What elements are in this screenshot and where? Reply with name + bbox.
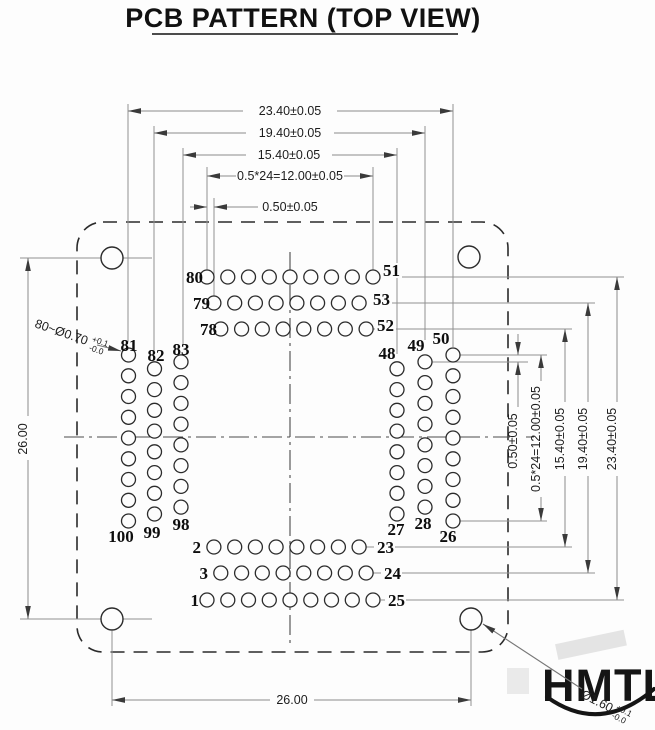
pin-label-51: 51	[383, 261, 400, 280]
pad-hole-top-inner-5	[297, 322, 311, 336]
pad-hole-left-outer-7	[122, 473, 136, 487]
pin-label-25: 25	[388, 591, 405, 610]
pad-hole-top-outer-3	[242, 270, 256, 284]
pad-hole-top-outer-5	[283, 270, 297, 284]
pin-label-99: 99	[144, 523, 161, 542]
pad-hole-left-inner-8	[174, 500, 188, 514]
pad-hole-bottom-inner-6	[311, 540, 325, 554]
pad-hole-left-inner-6	[174, 459, 188, 473]
pad-hole-left-inner-2	[174, 376, 188, 390]
dim-right-pitch: 0.5*24=12.00±0.05	[529, 386, 543, 492]
pad-hole-top-outer-4	[262, 270, 276, 284]
pin-label-50: 50	[433, 329, 450, 348]
mounting-hole-1	[101, 247, 123, 269]
dim-top-pitch: 0.5*24=12.00±0.05	[237, 169, 343, 183]
pad-hole-top-inner-8	[359, 322, 373, 336]
pad-hole-top-inner-3	[255, 322, 269, 336]
pad-hole-right-middle-4	[418, 417, 432, 431]
pcb-pattern-drawing: PCB PATTERN (TOP VIEW)	[0, 0, 655, 730]
pad-hole-left-outer-3	[122, 390, 136, 404]
pad-hole-bottom-middle-1	[214, 566, 228, 580]
pad-hole-right-inner-1	[390, 362, 404, 376]
drawing-title: PCB PATTERN (TOP VIEW)	[125, 3, 481, 34]
pad-hole-top-middle-2	[228, 296, 242, 310]
pin-label-2: 2	[193, 538, 202, 557]
pad-hole-right-outer-8	[446, 493, 460, 507]
pad-hole-left-outer-2	[122, 369, 136, 383]
pad-hole-right-inner-4	[390, 424, 404, 438]
pad-hole-right-outer-4	[446, 410, 460, 424]
pin-label-53: 53	[373, 290, 390, 309]
dim-bottom-26-00: 26.00	[276, 693, 307, 707]
pad-hole-left-middle-2	[148, 383, 162, 397]
pad-hole-left-outer-9	[122, 514, 136, 528]
pad-hole-bottom-middle-7	[338, 566, 352, 580]
pad-hole-bottom-outer-3	[242, 593, 256, 607]
page-title: PCB PATTERN (TOP VIEW)	[125, 3, 481, 33]
centerlines	[64, 252, 540, 644]
pad-hole-right-middle-6	[418, 459, 432, 473]
pad-hole-right-inner-3	[390, 403, 404, 417]
pad-hole-bottom-outer-1	[200, 593, 214, 607]
pad-hole-top-inner-6	[318, 322, 332, 336]
pad-hole-right-outer-1	[446, 348, 460, 362]
pin-label-3: 3	[200, 564, 209, 583]
pin-label-80: 80	[186, 268, 203, 287]
pad-hole-right-outer-5	[446, 431, 460, 445]
pin-label-26: 26	[440, 527, 457, 546]
pad-hole-top-middle-4	[269, 296, 283, 310]
pad-hole-bottom-outer-9	[366, 593, 380, 607]
dim-top-15-40: 15.40±0.05	[258, 148, 321, 162]
pad-hole-right-inner-6	[390, 466, 404, 480]
pad-hole-right-inner-7	[390, 486, 404, 500]
pad-hole-bottom-middle-4	[276, 566, 290, 580]
pad-hole-bottom-middle-8	[359, 566, 373, 580]
pad-hole-left-middle-7	[148, 486, 162, 500]
pad-hole-left-inner-5	[174, 438, 188, 452]
pad-hole-top-inner-4	[276, 322, 290, 336]
pad-hole-top-inner-7	[338, 322, 352, 336]
pad-hole-bottom-inner-4	[269, 540, 283, 554]
pad-hole-top-middle-3	[248, 296, 262, 310]
pad-hole-top-middle-5	[290, 296, 304, 310]
left-dimension: 26.00	[16, 258, 35, 619]
logo-smudge	[555, 630, 627, 660]
mounting-hole-4	[460, 608, 482, 630]
pin-label-83: 83	[173, 340, 190, 359]
pad-hole-left-middle-4	[148, 424, 162, 438]
dim-right-15-40: 15.40±0.05	[553, 408, 567, 471]
pad-hole-top-inner-2	[235, 322, 249, 336]
pad-hole-bottom-middle-5	[297, 566, 311, 580]
pad-hole-bottom-outer-6	[304, 593, 318, 607]
pad-hole-bottom-outer-5	[283, 593, 297, 607]
pad-hole-bottom-middle-2	[235, 566, 249, 580]
pad-hole-bottom-outer-2	[221, 593, 235, 607]
pin-label-24: 24	[384, 564, 402, 583]
pad-hole-left-inner-7	[174, 479, 188, 493]
pad-hole-top-middle-8	[352, 296, 366, 310]
dim-right-19-40: 19.40±0.05	[576, 408, 590, 471]
pad-hole-right-middle-2	[418, 376, 432, 390]
pad-hole-grid	[122, 270, 461, 607]
pin-label-27: 27	[388, 520, 406, 539]
dim-left-26-00: 26.00	[16, 423, 30, 454]
top-dimensions: 23.40±0.05 19.40±0.05 15.40±0.05 0.5*24=…	[128, 104, 453, 214]
pad-hole-bottom-inner-2	[228, 540, 242, 554]
pad-hole-right-outer-6	[446, 452, 460, 466]
pin-label-78: 78	[200, 320, 217, 339]
pad-hole-bottom-inner-7	[331, 540, 345, 554]
pad-hole-bottom-inner-1	[207, 540, 221, 554]
pin-label-1: 1	[191, 591, 200, 610]
pad-hole-top-outer-8	[345, 270, 359, 284]
pad-hole-bottom-outer-8	[345, 593, 359, 607]
pin-label-81: 81	[121, 336, 138, 355]
pad-hole-right-middle-3	[418, 396, 432, 410]
pad-hole-top-middle-7	[331, 296, 345, 310]
dim-top-0-50: 0.50±0.05	[262, 200, 318, 214]
pin-label-100: 100	[108, 527, 134, 546]
pad-hole-bottom-inner-5	[290, 540, 304, 554]
pad-hole-left-middle-5	[148, 445, 162, 459]
pin-label-79: 79	[193, 294, 210, 313]
pad-hole-bottom-middle-6	[318, 566, 332, 580]
dim-right-23-40: 23.40±0.05	[605, 408, 619, 471]
pad-hole-top-outer-9	[366, 270, 380, 284]
pad-hole-right-middle-7	[418, 479, 432, 493]
pin-label-52: 52	[377, 316, 394, 335]
dim-top-19-40: 19.40±0.05	[259, 126, 322, 140]
bottom-dimension: 26.00	[112, 693, 471, 707]
mounting-hole-2	[458, 246, 480, 268]
pad-hole-right-outer-7	[446, 473, 460, 487]
pin-label-82: 82	[148, 346, 165, 365]
pad-hole-right-middle-8	[418, 500, 432, 514]
pad-hole-left-inner-4	[174, 417, 188, 431]
dim-right-0-50: 0.50±0.05	[506, 413, 520, 469]
pad-hole-left-outer-6	[122, 452, 136, 466]
logo-smudge	[507, 668, 529, 694]
pad-hole-bottom-inner-3	[248, 540, 262, 554]
pin-label-28: 28	[415, 514, 432, 533]
pad-hole-left-middle-6	[148, 466, 162, 480]
pad-hole-right-outer-2	[446, 369, 460, 383]
pad-hole-bottom-inner-8	[352, 540, 366, 554]
pad-hole-right-middle-1	[418, 355, 432, 369]
pad-hole-top-middle-6	[311, 296, 325, 310]
pad-hole-top-outer-2	[221, 270, 235, 284]
pad-hole-right-outer-3	[446, 390, 460, 404]
pad-hole-right-outer-9	[446, 514, 460, 528]
pad-hole-left-middle-8	[148, 507, 162, 521]
pad-hole-bottom-outer-7	[325, 593, 339, 607]
pin-label-23: 23	[377, 538, 394, 557]
pad-hole-right-inner-2	[390, 383, 404, 397]
dim-top-23-40: 23.40±0.05	[259, 104, 322, 118]
pad-size-spec: 80~Ø0.70	[33, 317, 90, 348]
pad-hole-left-outer-4	[122, 410, 136, 424]
right-dimensions: 0.50±0.05 0.5*24=12.00±0.05 15.40±0.05 1…	[506, 277, 624, 600]
pad-hole-right-inner-5	[390, 445, 404, 459]
pad-hole-bottom-outer-4	[262, 593, 276, 607]
pad-hole-left-middle-3	[148, 403, 162, 417]
pad-hole-bottom-middle-3	[255, 566, 269, 580]
pad-hole-top-outer-6	[304, 270, 318, 284]
pad-hole-left-outer-8	[122, 493, 136, 507]
hmtl-logo: HMTL	[507, 630, 655, 715]
pad-hole-left-inner-3	[174, 396, 188, 410]
pad-hole-right-inner-8	[390, 507, 404, 521]
pad-hole-left-outer-5	[122, 431, 136, 445]
pin-label-98: 98	[173, 515, 190, 534]
pin-label-48: 48	[379, 344, 396, 363]
pad-hole-top-outer-7	[325, 270, 339, 284]
mounting-hole-3	[101, 608, 123, 630]
pin-label-49: 49	[408, 336, 425, 355]
drawing-canvas: PCB PATTERN (TOP VIEW)	[0, 0, 655, 730]
pad-size-callout: 80~Ø0.70 +0.1 -0.0	[32, 315, 121, 358]
pad-hole-right-middle-5	[418, 438, 432, 452]
